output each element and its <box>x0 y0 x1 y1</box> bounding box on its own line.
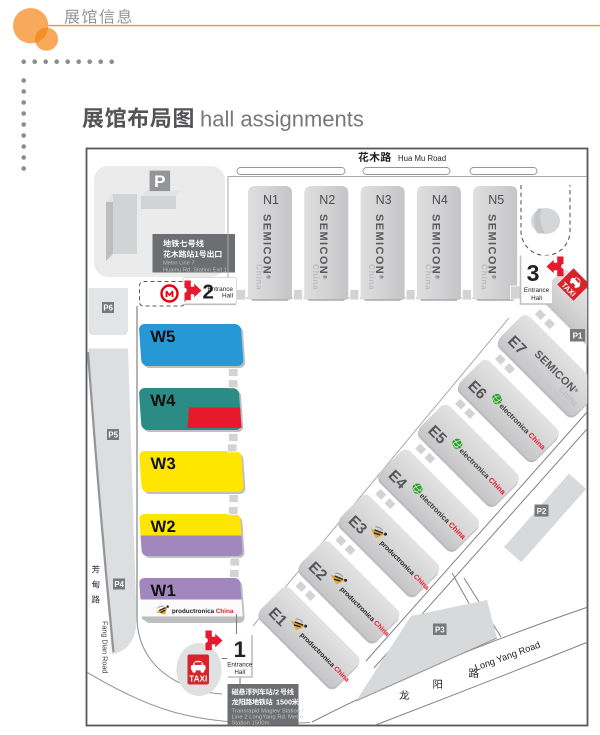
svg-text:P: P <box>154 172 165 191</box>
svg-text:W3: W3 <box>150 454 176 473</box>
svg-text:Entrance: Entrance <box>524 287 550 294</box>
svg-text:N3: N3 <box>376 193 392 207</box>
svg-text:1: 1 <box>234 637 246 662</box>
svg-text:N2: N2 <box>319 193 335 207</box>
svg-text:Metro Line 7: Metro Line 7 <box>163 261 195 267</box>
svg-text:China: China <box>480 264 490 290</box>
svg-text:W2: W2 <box>150 517 176 536</box>
svg-text:P3: P3 <box>435 626 445 635</box>
svg-text:P1: P1 <box>573 332 583 341</box>
svg-text:Transrapid Maglev Station /: Transrapid Maglev Station / <box>232 708 304 714</box>
svg-text:P5: P5 <box>108 431 118 440</box>
svg-text:W4: W4 <box>150 391 177 410</box>
svg-text:/2: /2 <box>273 688 279 697</box>
svg-text:Hall: Hall <box>234 669 245 676</box>
svg-text:China: China <box>311 264 321 290</box>
svg-text:Entrance: Entrance <box>227 662 253 669</box>
svg-text:N5: N5 <box>488 193 504 207</box>
svg-text:W1: W1 <box>150 581 176 600</box>
svg-text:P4: P4 <box>114 580 124 589</box>
svg-text:China: China <box>367 264 377 290</box>
svg-text:P6: P6 <box>103 304 113 313</box>
svg-text:China: China <box>255 264 265 290</box>
svg-text:Hall: Hall <box>222 293 233 300</box>
svg-text:Fang Dian Road: Fang Dian Road <box>101 621 110 673</box>
svg-text:N4: N4 <box>432 193 448 207</box>
svg-text:P2: P2 <box>537 507 547 516</box>
svg-text:China: China <box>423 264 433 290</box>
svg-text:3: 3 <box>527 260 540 286</box>
svg-text:hall assignments: hall assignments <box>200 107 364 132</box>
svg-text:Hua Mu Road: Hua Mu Road <box>398 154 446 163</box>
svg-text:productronica China: productronica China <box>172 608 234 615</box>
svg-text:N1: N1 <box>263 193 279 207</box>
svg-text:W5: W5 <box>150 327 176 346</box>
svg-text:1500: 1500 <box>276 698 292 707</box>
svg-text:Huamu Rd. Station Exit 1: Huamu Rd. Station Exit 1 <box>163 268 227 274</box>
svg-text:Hall: Hall <box>531 295 542 302</box>
svg-text:TAXI: TAXI <box>189 675 207 684</box>
